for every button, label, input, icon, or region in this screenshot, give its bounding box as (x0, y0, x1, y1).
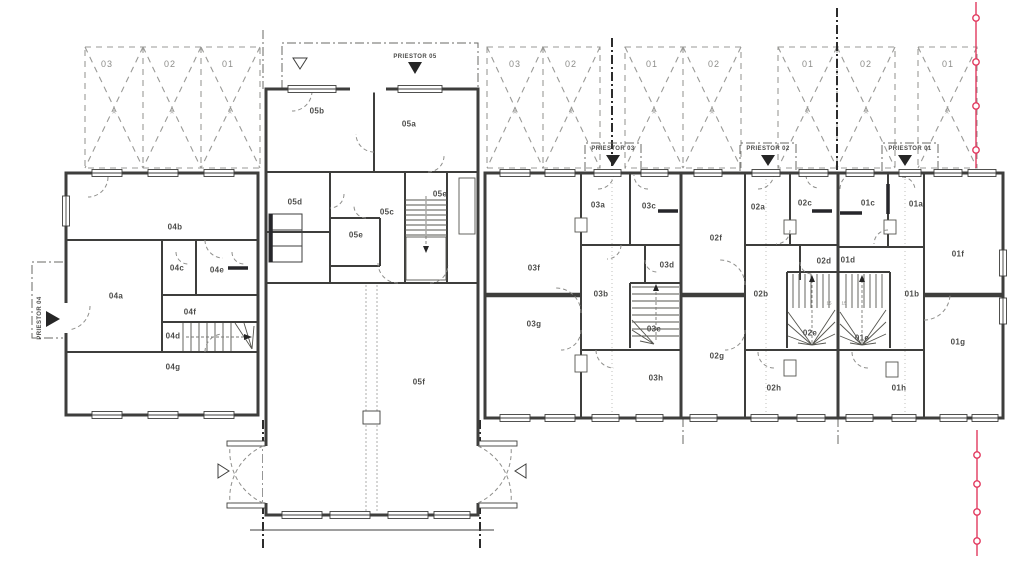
parking-x-mark: x (112, 109, 116, 116)
priestor-label-03: PRIESTOR 03 (591, 146, 634, 152)
parking-space-label: 01 (646, 59, 658, 69)
door-arrow-right-icon (515, 464, 526, 478)
entry-arrow-icon-01 (898, 155, 912, 166)
shaft-05 (459, 178, 475, 234)
parking-space-label: 02 (860, 59, 872, 69)
room-label-01f: 01f (952, 250, 964, 259)
room-label-01b: 01b (905, 290, 920, 299)
parking-x-mark: x (805, 109, 809, 116)
entry-arrow-icon-02 (761, 155, 775, 166)
unit-05 (218, 89, 526, 530)
parking-x-mark: x (569, 109, 573, 116)
parking-x-mark: x (513, 109, 517, 116)
parking-space-label: 01 (942, 59, 954, 69)
stairs-04 (183, 323, 254, 351)
priestor-label-04: PRIESTOR 04 (37, 296, 43, 339)
stair-tread-number: 15 (841, 301, 846, 306)
room-label-02h: 02h (767, 384, 782, 393)
parking-space-label: 02 (164, 59, 176, 69)
room-label-02a: 02a (751, 203, 765, 212)
room-label-02f: 02f (710, 234, 722, 243)
parking-x-mark: x (864, 109, 868, 116)
room-label-01h: 01h (892, 384, 907, 393)
parking-x-mark: x (170, 109, 174, 116)
room-label-01c: 01c (861, 199, 875, 208)
parking-space-label: 02 (565, 59, 577, 69)
terrace-doors (218, 441, 526, 530)
room-label-02e: 02e (803, 329, 817, 338)
room-label-04f: 04f (184, 308, 196, 317)
vent-arrow-icon (293, 58, 307, 69)
door-arrow-left-icon (218, 464, 229, 478)
priestor-label-01: PRIESTOR 01 (888, 146, 931, 152)
room-label-05a: 05a (402, 120, 416, 129)
room-label-01g: 01g (951, 338, 966, 347)
parking-x-mark: x (652, 109, 656, 116)
room-label-02b: 02b (754, 290, 769, 299)
room-label-02g: 02g (710, 352, 725, 361)
room-label-05e-lower: 05e (349, 231, 363, 240)
parking-bays (85, 47, 977, 168)
floor-plan-canvas: 04b 04a 04c 04e 04f 04d 04g 05b 05a 05d … (0, 0, 1011, 570)
room-label-01a: 01a (909, 200, 923, 209)
priestor-label-05: PRIESTOR 05 (393, 54, 436, 60)
parking-x-mark: x (228, 109, 232, 116)
red-boundary-line (973, 2, 980, 556)
room-label-05f: 05f (413, 378, 425, 387)
stairs-05 (405, 196, 447, 280)
room-label-03h: 03h (649, 374, 664, 383)
room-label-05d: 05d (288, 198, 303, 207)
room-label-05e-upper: 05e (433, 190, 447, 199)
room-label-03a: 03a (591, 201, 605, 210)
room-label-04b: 04b (168, 223, 183, 232)
entry-arrow-icon-03 (606, 155, 620, 166)
room-label-04d: 04d (166, 332, 181, 341)
stair-tread-number: 15 (826, 301, 831, 306)
entry-arrow-icon-05 (408, 62, 422, 74)
unit-04 (66, 173, 258, 415)
room-label-02d: 02d (817, 257, 832, 266)
room-label-05c: 05c (380, 208, 394, 217)
room-label-03g: 03g (527, 320, 542, 329)
stairs-03 (632, 284, 679, 344)
parking-x-mark: x (945, 109, 949, 116)
room-label-01e: 01e (855, 334, 869, 343)
parking-space-label: 01 (802, 59, 814, 69)
room-label-03d: 03d (660, 261, 675, 270)
parking-space-label: 01 (222, 59, 234, 69)
parking-space-label: 02 (708, 59, 720, 69)
room-label-03c: 03c (642, 202, 656, 211)
room-label-03f: 03f (528, 264, 540, 273)
parking-x-mark: x (710, 109, 714, 116)
room-label-03e: 03e (647, 325, 661, 334)
room-label-02c: 02c (798, 199, 812, 208)
unit-01 (838, 173, 1003, 418)
parking-space-label: 03 (101, 59, 113, 69)
room-label-05b: 05b (310, 107, 325, 116)
entry-arrow-icon-04 (46, 311, 60, 327)
room-label-03b: 03b (594, 290, 609, 299)
parking-space-label: 03 (509, 59, 521, 69)
room-label-04e: 04e (210, 266, 224, 275)
room-label-01d: 01d (841, 256, 856, 265)
room-label-04a: 04a (109, 292, 123, 301)
priestor-label-02: PRIESTOR 02 (746, 146, 789, 152)
room-label-04c: 04c (170, 264, 184, 273)
room-label-04g: 04g (166, 363, 181, 372)
floor-plan-drawing (0, 0, 1011, 570)
